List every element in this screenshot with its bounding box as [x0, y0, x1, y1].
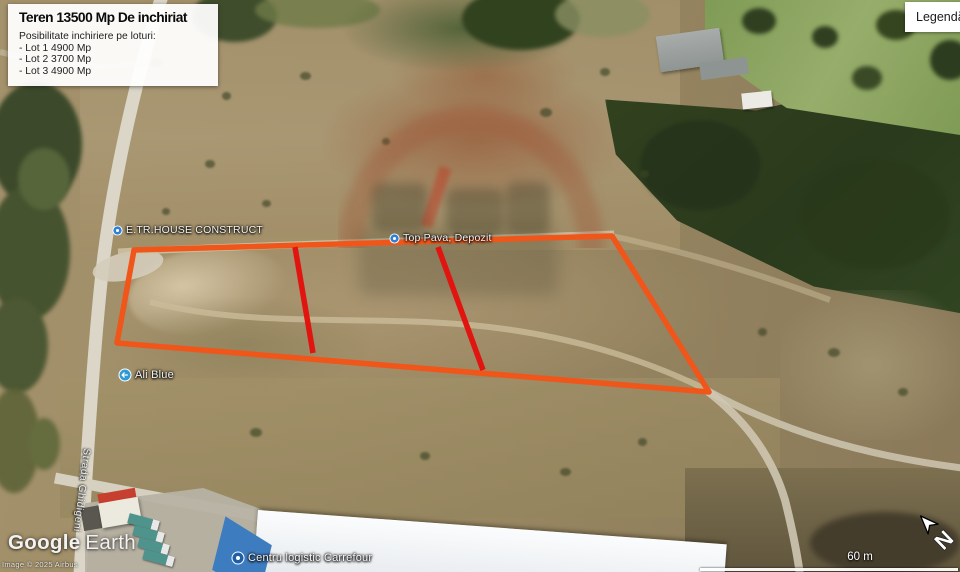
lot-line-3: - Lot 3 4900 Mp — [19, 66, 208, 78]
poi-label: Ali Blue — [135, 369, 174, 381]
roads-layer — [0, 0, 960, 572]
poi-pin-icon — [112, 225, 123, 236]
poi-ali-blue[interactable]: Ali Blue — [118, 368, 174, 382]
legend-button[interactable]: Legendă — [905, 2, 960, 32]
poi-label: E.TR.HOUSE CONSTRUCT — [126, 224, 263, 236]
listing-subtitle: Posibilitate inchiriere pe loturi: — [19, 31, 208, 43]
lot-line-1: - Lot 1 4900 Mp — [19, 43, 208, 55]
legend-button-label: Legendă — [916, 10, 960, 24]
poi-etr-house[interactable]: E.TR.HOUSE CONSTRUCT — [112, 224, 263, 236]
google-wordmark: Google — [8, 531, 80, 554]
poi-label: Top Pava, Depozit — [403, 232, 492, 244]
poi-shop-icon — [118, 368, 132, 382]
poi-pin-icon — [389, 233, 400, 244]
google-earth-logo: GoogleEarth — [8, 531, 136, 555]
compass-north-indicator[interactable]: N — [914, 504, 960, 569]
compass-n-letter: N — [930, 526, 959, 555]
poi-store-icon — [231, 551, 245, 565]
track-through-plot — [150, 302, 705, 389]
poi-carrefour[interactable]: Centru logistic Carrefour — [231, 551, 372, 565]
imagery-copyright: Image © 2025 Airbus — [2, 560, 78, 569]
scale-bar-label: 60 m — [820, 551, 900, 563]
lot-line-2: - Lot 2 3700 Mp — [19, 54, 208, 66]
listing-info-box: Teren 13500 Mp De inchiriat Posibilitate… — [8, 4, 218, 86]
earth-wordmark: Earth — [85, 531, 136, 554]
poi-top-pava[interactable]: Top Pava, Depozit — [389, 232, 492, 244]
listing-title: Teren 13500 Mp De inchiriat — [19, 10, 208, 25]
poi-label: Centru logistic Carrefour — [248, 552, 372, 564]
google-earth-viewport: E.TR.HOUSE CONSTRUCT Top Pava, Depozit A… — [0, 0, 960, 572]
